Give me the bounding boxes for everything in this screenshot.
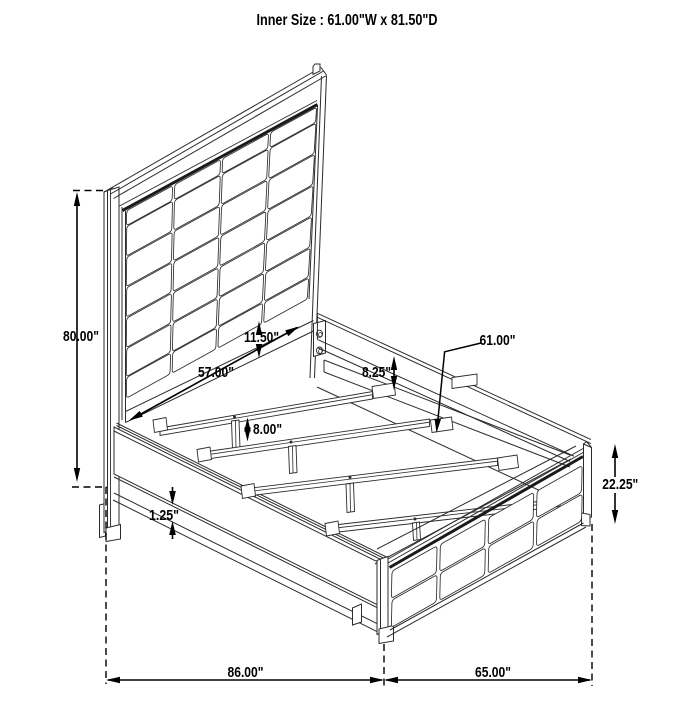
svg-text:1.25": 1.25" [149,507,179,524]
svg-text:86.00": 86.00" [228,664,264,681]
svg-text:22.25": 22.25" [602,476,638,493]
svg-text:Inner Size : 61.00"W x 81.50"D: Inner Size : 61.00"W x 81.50"D [257,12,438,29]
svg-text:11.50": 11.50" [244,329,279,346]
svg-text:8.25": 8.25" [362,364,391,381]
svg-text:61.00": 61.00" [480,332,516,349]
svg-text:65.00": 65.00" [475,664,511,681]
svg-text:80.00": 80.00" [63,328,99,345]
svg-text:57.00": 57.00" [198,364,234,381]
svg-text:8.00": 8.00" [253,421,282,438]
